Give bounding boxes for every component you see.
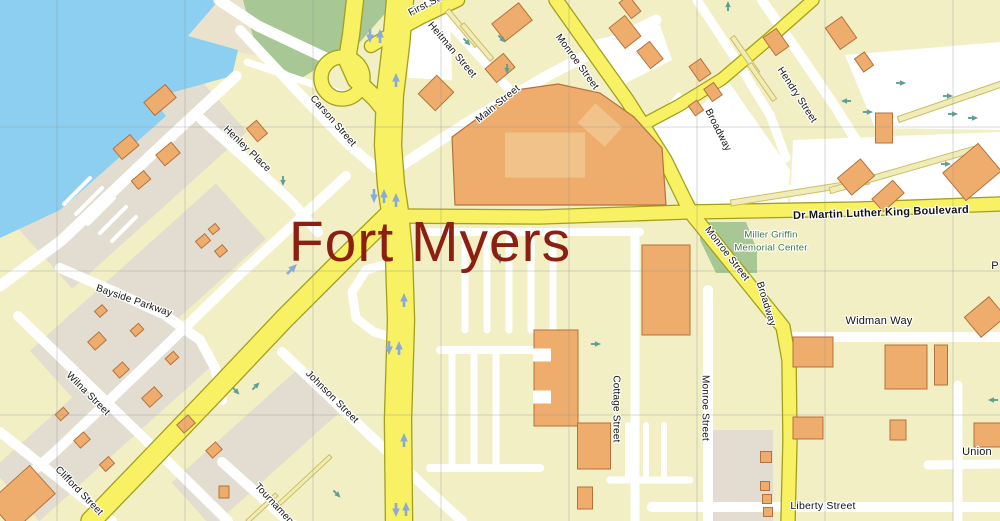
building-48 — [219, 486, 229, 498]
building-46 — [764, 508, 773, 517]
street-label-liberty-street: Liberty Street — [790, 500, 855, 512]
building-36 — [578, 423, 611, 469]
building-cutout-0 — [533, 349, 551, 362]
building-accent-0 — [505, 133, 585, 178]
union-road-h — [928, 464, 1000, 465]
building-41 — [793, 417, 823, 439]
street-label-union: Union — [962, 446, 992, 458]
building-cutout-1 — [533, 391, 551, 404]
street-label-p: P — [991, 260, 999, 272]
building-38 — [793, 337, 833, 367]
building-42 — [890, 420, 906, 440]
street-label-miller-griffin: Miller Griffin — [744, 230, 797, 241]
building-45 — [763, 495, 772, 504]
street-label-monroe-street: Monroe Street — [699, 375, 710, 441]
city-label: Fort Myers — [289, 210, 571, 274]
city-name-label: Fort Myers — [289, 210, 571, 274]
fort-myers-map: First StreetCarson StreetHeitman StreetM… — [0, 0, 1000, 521]
building-35 — [534, 330, 578, 426]
street-label-memorial-center: Memorial Center — [734, 243, 807, 254]
building-43 — [761, 452, 772, 463]
building-37 — [578, 487, 593, 509]
building-30 — [876, 113, 893, 143]
street-label-cottage-street: Cottage Street — [610, 375, 621, 442]
street-label-widman-way: Widman Way — [846, 315, 913, 327]
building-44 — [761, 482, 770, 491]
building-49 — [974, 423, 1000, 447]
building-34 — [642, 245, 690, 335]
city-map-viewport: First StreetCarson StreetHeitman StreetM… — [0, 0, 1000, 521]
building-39 — [885, 345, 927, 389]
building-40 — [935, 345, 948, 385]
